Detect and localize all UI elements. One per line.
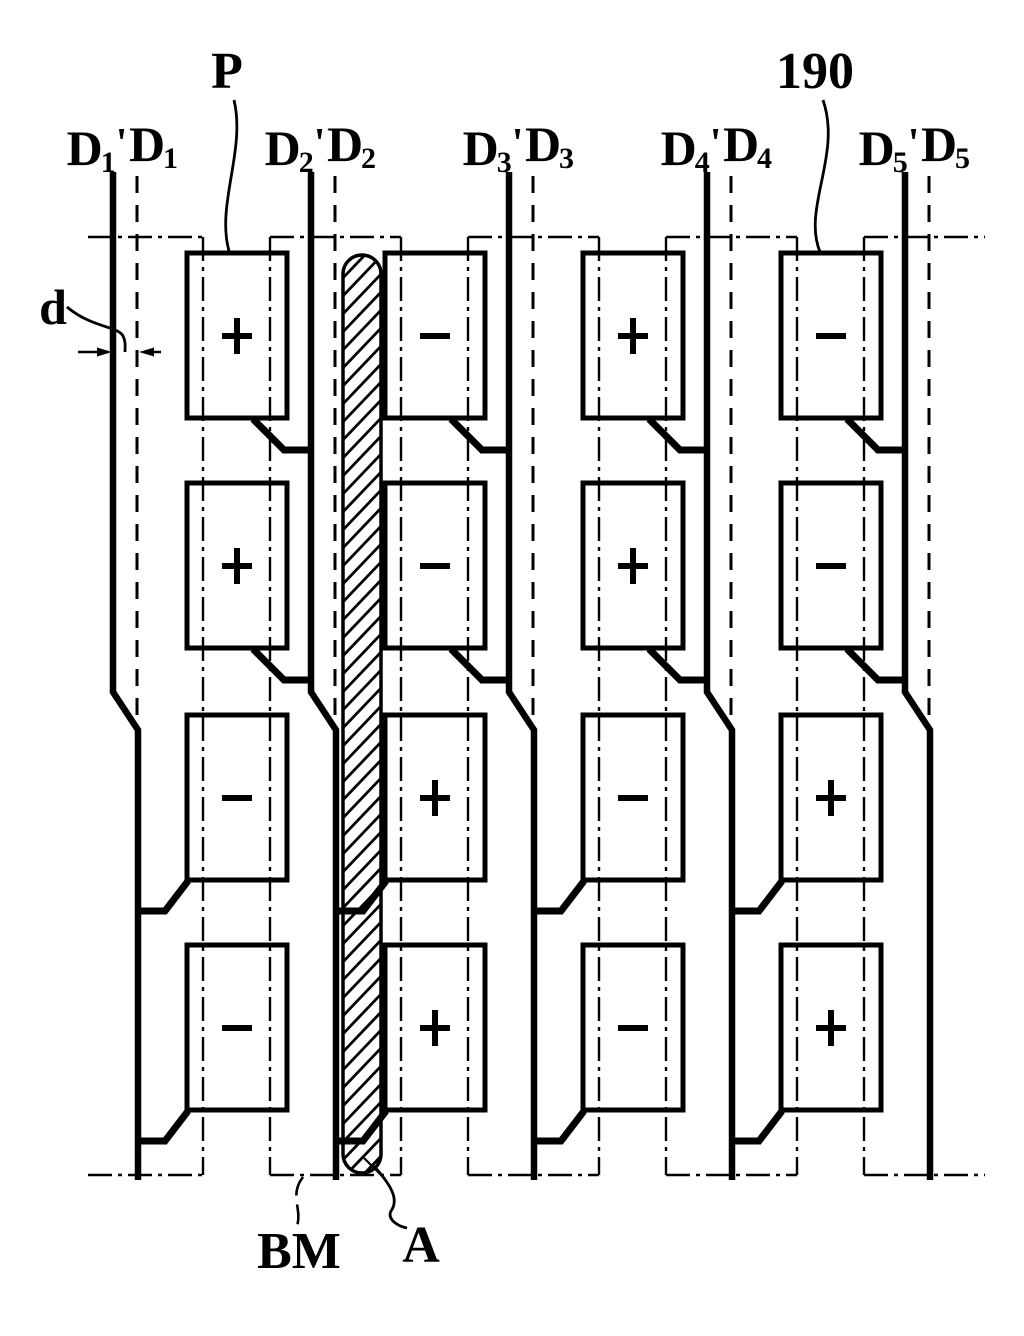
connection-r3c3-to-left-line: [531, 881, 584, 911]
reference-190-leader: [815, 100, 828, 252]
connection-r2c2-to-right-line: [451, 649, 512, 680]
area-a-label: A: [402, 1220, 440, 1272]
hatch-line: [340, 1171, 384, 1217]
data-line-D5-label: D5: [921, 118, 969, 170]
data-line-D1-label: D1: [129, 118, 177, 170]
connection-r2c3-to-right-line: [649, 649, 710, 680]
pixel-label-leader: [226, 100, 237, 251]
black-matrix-label: BM: [257, 1226, 341, 1278]
data-line-D2-label: D2: [327, 118, 375, 170]
connection-r1c2-to-right-line: [451, 419, 512, 450]
connection-r2c4-to-right-line: [847, 649, 908, 680]
reference-190-label: 190: [776, 46, 854, 98]
data-line-D1-prime-label: D1': [67, 118, 126, 174]
connection-r1c4-to-right-line: [847, 419, 908, 450]
connection-r4c4-to-left-line: [729, 1111, 782, 1141]
black-matrix-leader: [296, 1177, 303, 1229]
connection-r2c1-to-right-line: [253, 649, 314, 680]
data-line-D5-prime-solid: [905, 172, 930, 1180]
data-line-D3-prime-label: D3': [463, 118, 522, 174]
gap-d-leader: [67, 307, 125, 352]
connection-r1c1-to-right-line: [253, 419, 314, 450]
data-line-D4-prime-label: D4': [661, 118, 720, 174]
connection-r3c1-to-left-line: [135, 881, 188, 911]
pixel-label: P: [211, 46, 243, 98]
data-line-D2-prime-label: D2': [265, 118, 324, 174]
data-line-D1-prime-solid: [113, 172, 138, 1180]
data-line-D4-label: D4: [723, 118, 771, 170]
gap-d-label: d: [39, 282, 67, 332]
connection-r4c1-to-left-line: [135, 1111, 188, 1141]
connection-r4c3-to-left-line: [531, 1111, 584, 1141]
connection-r1c3-to-right-line: [649, 419, 710, 450]
data-line-D4-prime-solid: [707, 172, 732, 1180]
gap-dimension-right-arrowhead: [139, 348, 154, 357]
data-line-D2-prime-solid: [311, 172, 336, 1180]
connection-r3c4-to-left-line: [729, 881, 782, 911]
data-line-D3-prime-solid: [509, 172, 534, 1180]
data-line-D3-label: D3: [525, 118, 573, 170]
data-line-D5-prime-label: D5': [859, 118, 918, 174]
line-art-drawing: [0, 0, 1024, 1336]
patent-figure-canvas: D1'D1D2'D2D3'D3D4'D4D5'D5 P 190 d BM A: [0, 0, 1024, 1336]
